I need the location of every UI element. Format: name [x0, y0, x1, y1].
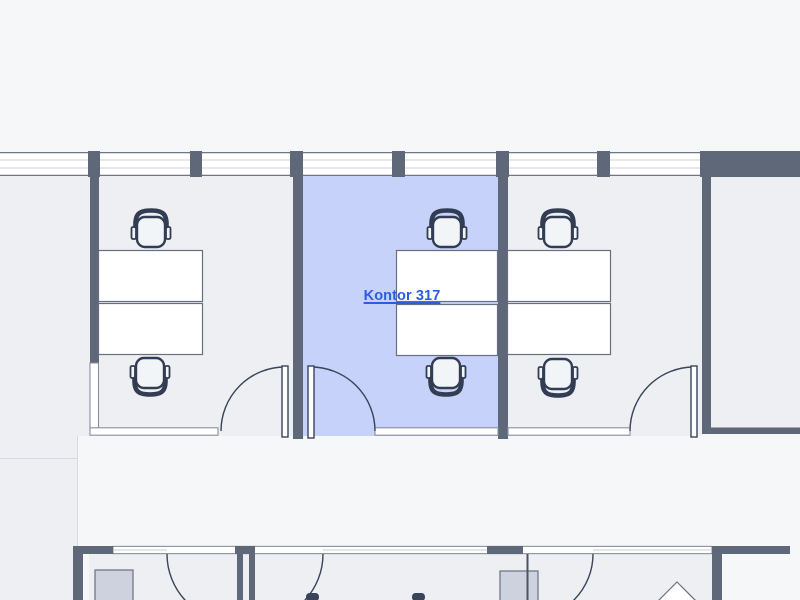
chair-icon	[132, 211, 171, 248]
sidelight-window	[90, 363, 99, 430]
door-leaf	[691, 366, 697, 437]
chair-back-partial	[306, 593, 319, 600]
wall-office2-farright	[702, 176, 711, 428]
chair-icon	[539, 359, 578, 396]
room-fills	[0, 176, 800, 600]
solid-wall-top-right	[700, 151, 800, 177]
room-far-right[interactable]	[711, 176, 800, 428]
cabinet	[95, 570, 133, 600]
room-label-kontor-317[interactable]: Kontor 317	[364, 288, 441, 304]
desk-kontor-317	[397, 305, 498, 356]
room-left-neighbor[interactable]	[0, 176, 90, 436]
desk	[99, 251, 203, 302]
chair-back-partial	[412, 593, 425, 600]
top-exterior-wall	[0, 151, 800, 177]
wall-farright-bottom	[702, 428, 800, 435]
chair-icon-kontor-317	[427, 358, 466, 395]
cabinet	[500, 571, 538, 600]
rooms-bottom-strip[interactable]	[89, 553, 712, 600]
chair-icon-kontor-317	[428, 211, 467, 248]
wall-bottom-left	[73, 547, 83, 600]
wall-left-of-office-1	[90, 176, 99, 363]
chair-icon	[131, 358, 170, 395]
chair-icon	[539, 211, 578, 248]
wall-office1-kontor317	[293, 176, 303, 439]
door-leaf	[282, 366, 288, 437]
room-bottom-left-annex[interactable]	[0, 436, 77, 600]
desk	[508, 304, 611, 355]
wall-bottom-right	[712, 547, 722, 600]
desk	[508, 251, 611, 302]
floor-plan-canvas[interactable]: Kontor 317	[0, 0, 800, 600]
wall-kontor317-office2	[498, 176, 508, 439]
door-leaf-kontor-317	[308, 366, 314, 438]
solid-wall-bottom-right	[712, 546, 790, 554]
desk	[99, 304, 203, 355]
